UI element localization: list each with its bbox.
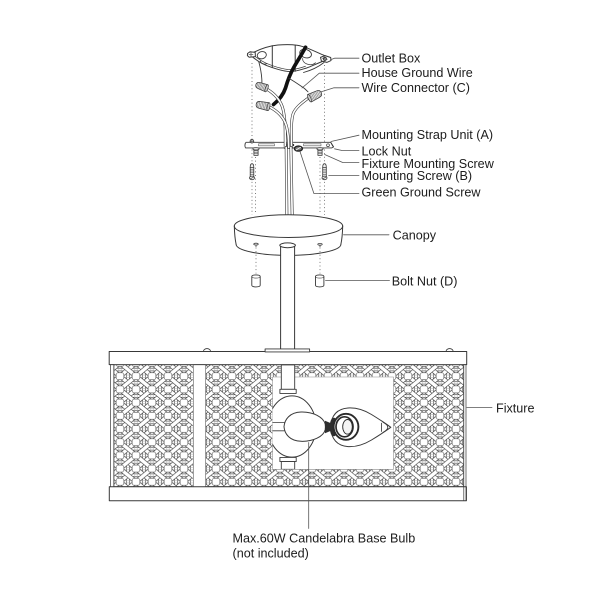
- svg-text:House Ground Wire: House Ground Wire: [362, 66, 473, 80]
- svg-text:Fixture: Fixture: [496, 401, 535, 415]
- svg-text:Canopy: Canopy: [393, 228, 437, 242]
- svg-text:Max.60W Candelabra Base Bulb: Max.60W Candelabra Base Bulb: [233, 531, 416, 545]
- svg-text:Wire Connector (C): Wire Connector (C): [362, 81, 470, 95]
- svg-text:Mounting Screw (B): Mounting Screw (B): [362, 169, 473, 183]
- svg-text:Outlet Box: Outlet Box: [362, 52, 422, 66]
- svg-text:Green Ground Screw: Green Ground Screw: [362, 186, 482, 200]
- svg-text:Bolt Nut (D): Bolt Nut (D): [392, 274, 458, 288]
- svg-text:Mounting Strap Unit (A): Mounting Strap Unit (A): [362, 128, 494, 142]
- svg-text:(not included): (not included): [233, 546, 309, 560]
